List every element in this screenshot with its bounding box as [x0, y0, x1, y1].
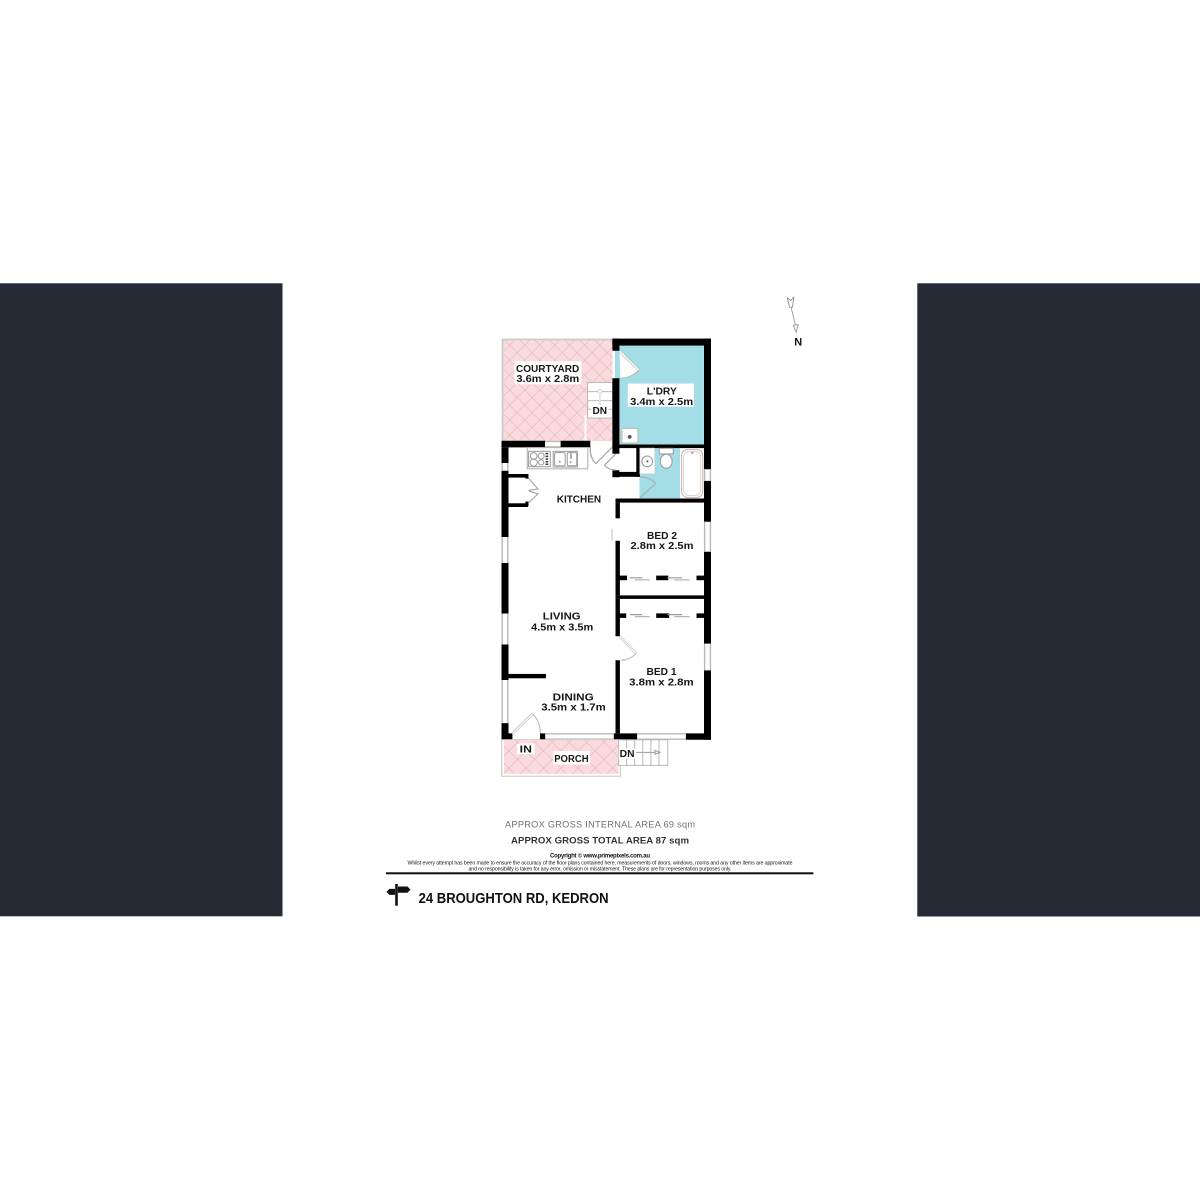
svg-text:3.5m x 1.7m: 3.5m x 1.7m	[541, 702, 606, 713]
svg-text:BED 2: BED 2	[647, 531, 677, 542]
svg-text:N: N	[794, 336, 802, 348]
svg-text:DN: DN	[620, 749, 635, 760]
svg-text:APPROX GROSS TOTAL AREA 87 sqm: APPROX GROSS TOTAL AREA 87 sqm	[511, 835, 689, 846]
svg-text:Whilst every attempt has been: Whilst every attempt has been made to en…	[408, 860, 793, 866]
svg-text:3.8m x 2.8m: 3.8m x 2.8m	[629, 677, 694, 688]
svg-text:KITCHEN: KITCHEN	[557, 495, 601, 506]
svg-text:3.4m x 2.5m: 3.4m x 2.5m	[630, 397, 693, 408]
svg-text:3.6m x 2.8m: 3.6m x 2.8m	[516, 374, 579, 385]
svg-text:PORCH: PORCH	[554, 754, 588, 765]
svg-text:APPROX GROSS INTERNAL AREA 69: APPROX GROSS INTERNAL AREA 69 sqm	[505, 819, 695, 829]
svg-text:24 BROUGHTON RD, KEDRON: 24 BROUGHTON RD, KEDRON	[419, 891, 609, 907]
svg-text:and no responsibility is taken: and no responsibility is taken for any e…	[469, 867, 732, 873]
svg-text:L'DRY: L'DRY	[647, 386, 677, 397]
svg-text:4.5m x 3.5m: 4.5m x 3.5m	[531, 622, 593, 633]
svg-text:LIVING: LIVING	[543, 612, 581, 623]
svg-text:Copyright © www.primepixels.co: Copyright © www.primepixels.com.au	[550, 853, 650, 860]
svg-text:2.8m x 2.5m: 2.8m x 2.5m	[631, 541, 694, 552]
svg-text:IN: IN	[520, 745, 532, 756]
svg-text:DN: DN	[593, 406, 608, 417]
